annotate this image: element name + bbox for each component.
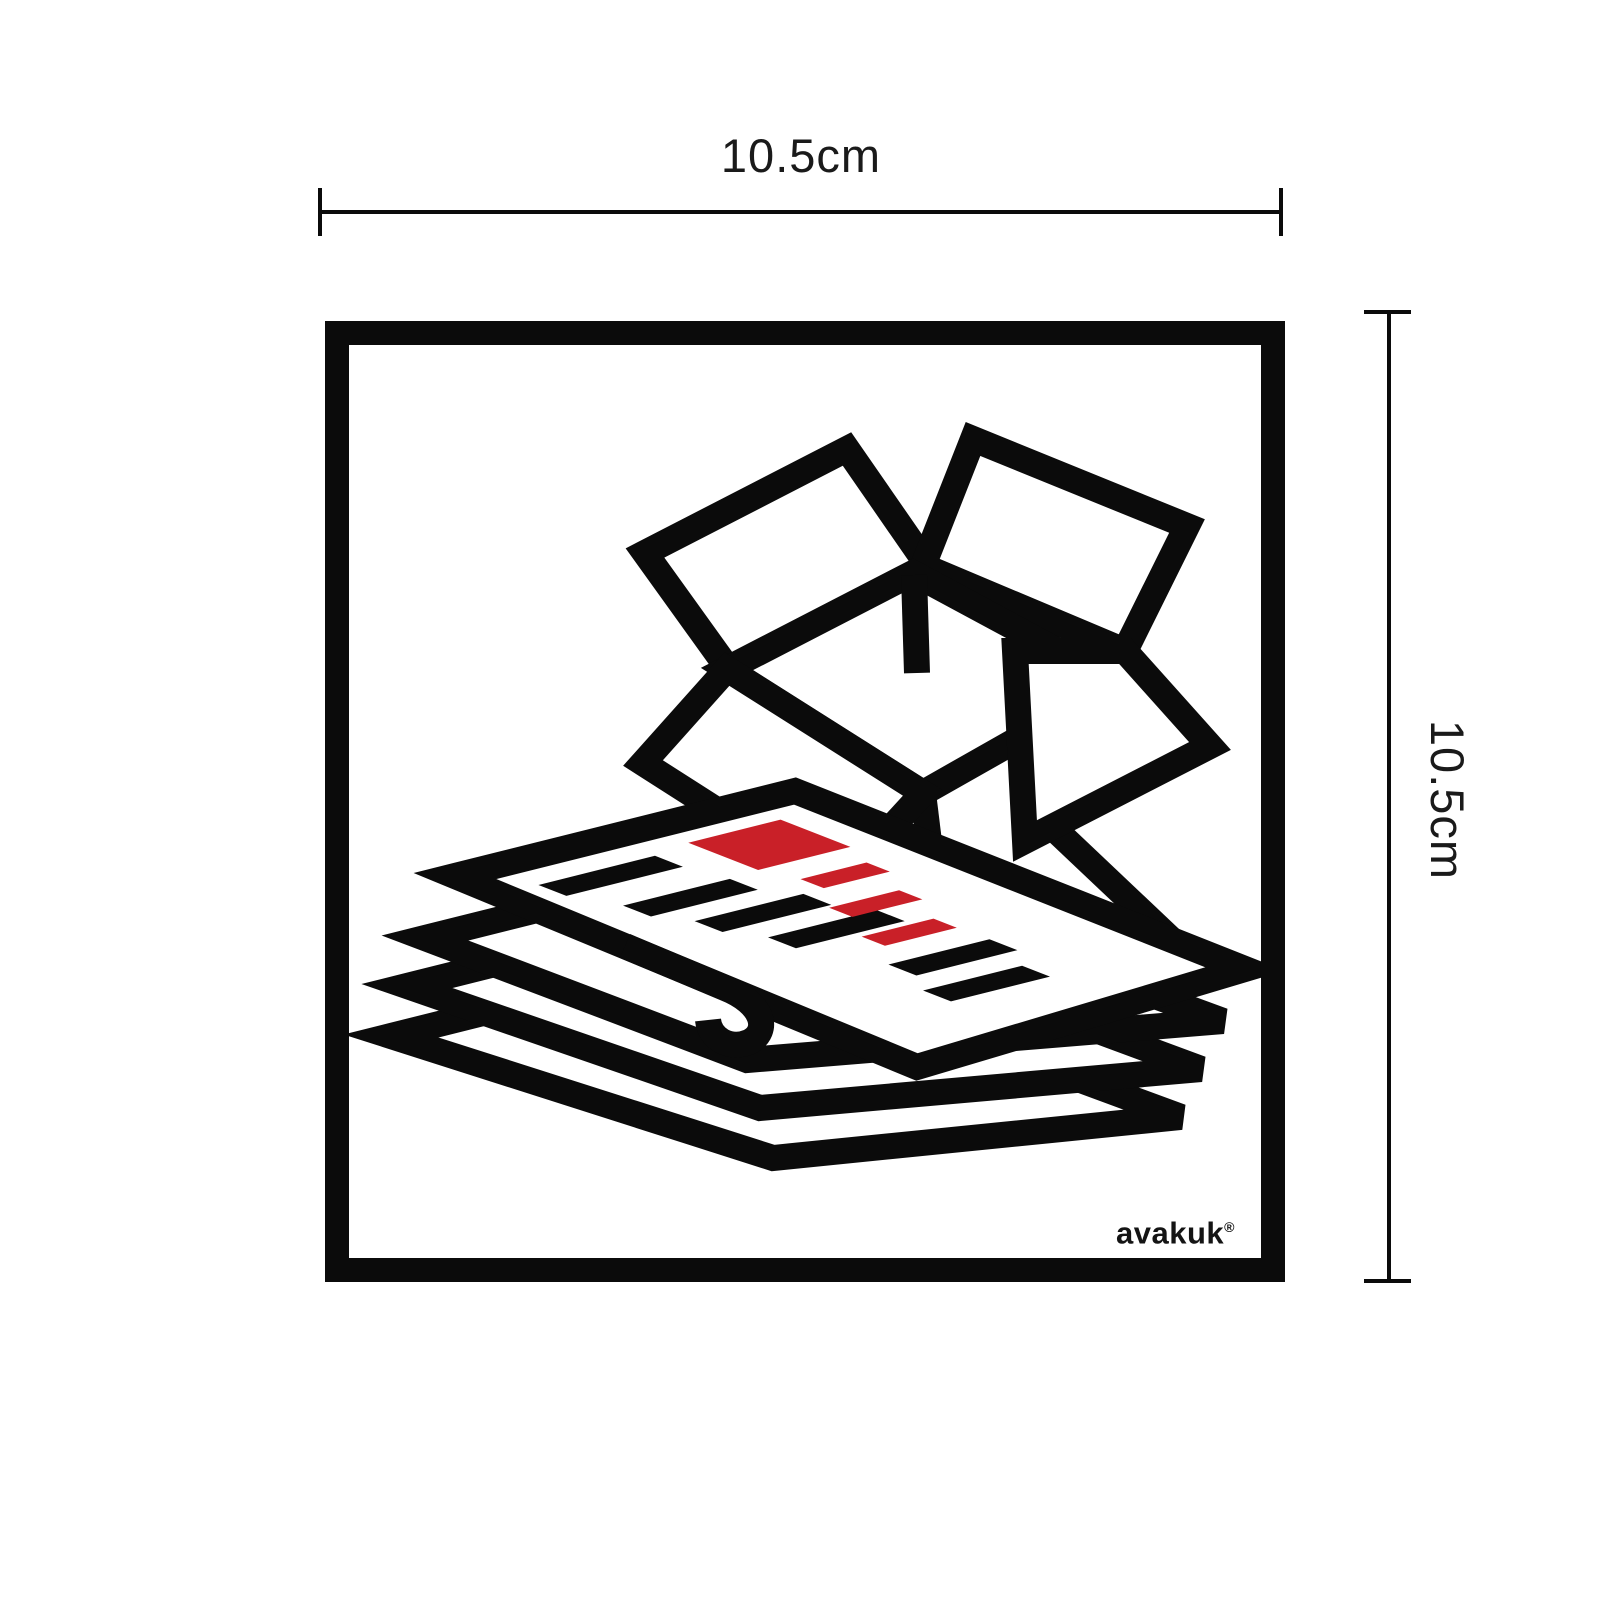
width-dimension-label: 10.5cm [601, 128, 1001, 184]
height-dimension-tick-bottom [1364, 1279, 1411, 1283]
box-front-right-flap [1015, 651, 1210, 841]
brand-name: avakuk [1116, 1215, 1224, 1250]
width-dimension-line [320, 210, 1282, 214]
newspaper-stack-icon [391, 791, 1245, 1158]
paper-recycling-pictogram-icon [349, 345, 1261, 1258]
sticker-square: avakuk® [325, 321, 1285, 1282]
box-inner-corner-edge [914, 575, 917, 673]
height-dimension-label: 10.5cm [1419, 600, 1475, 1000]
brand-logo: avakuk® [1116, 1210, 1235, 1250]
height-dimension-line [1387, 312, 1391, 1283]
width-dimension-tick-right [1279, 188, 1283, 236]
height-dimension-tick-top [1364, 310, 1411, 314]
registered-trademark-icon: ® [1224, 1219, 1235, 1235]
width-dimension-tick-left [318, 188, 322, 236]
